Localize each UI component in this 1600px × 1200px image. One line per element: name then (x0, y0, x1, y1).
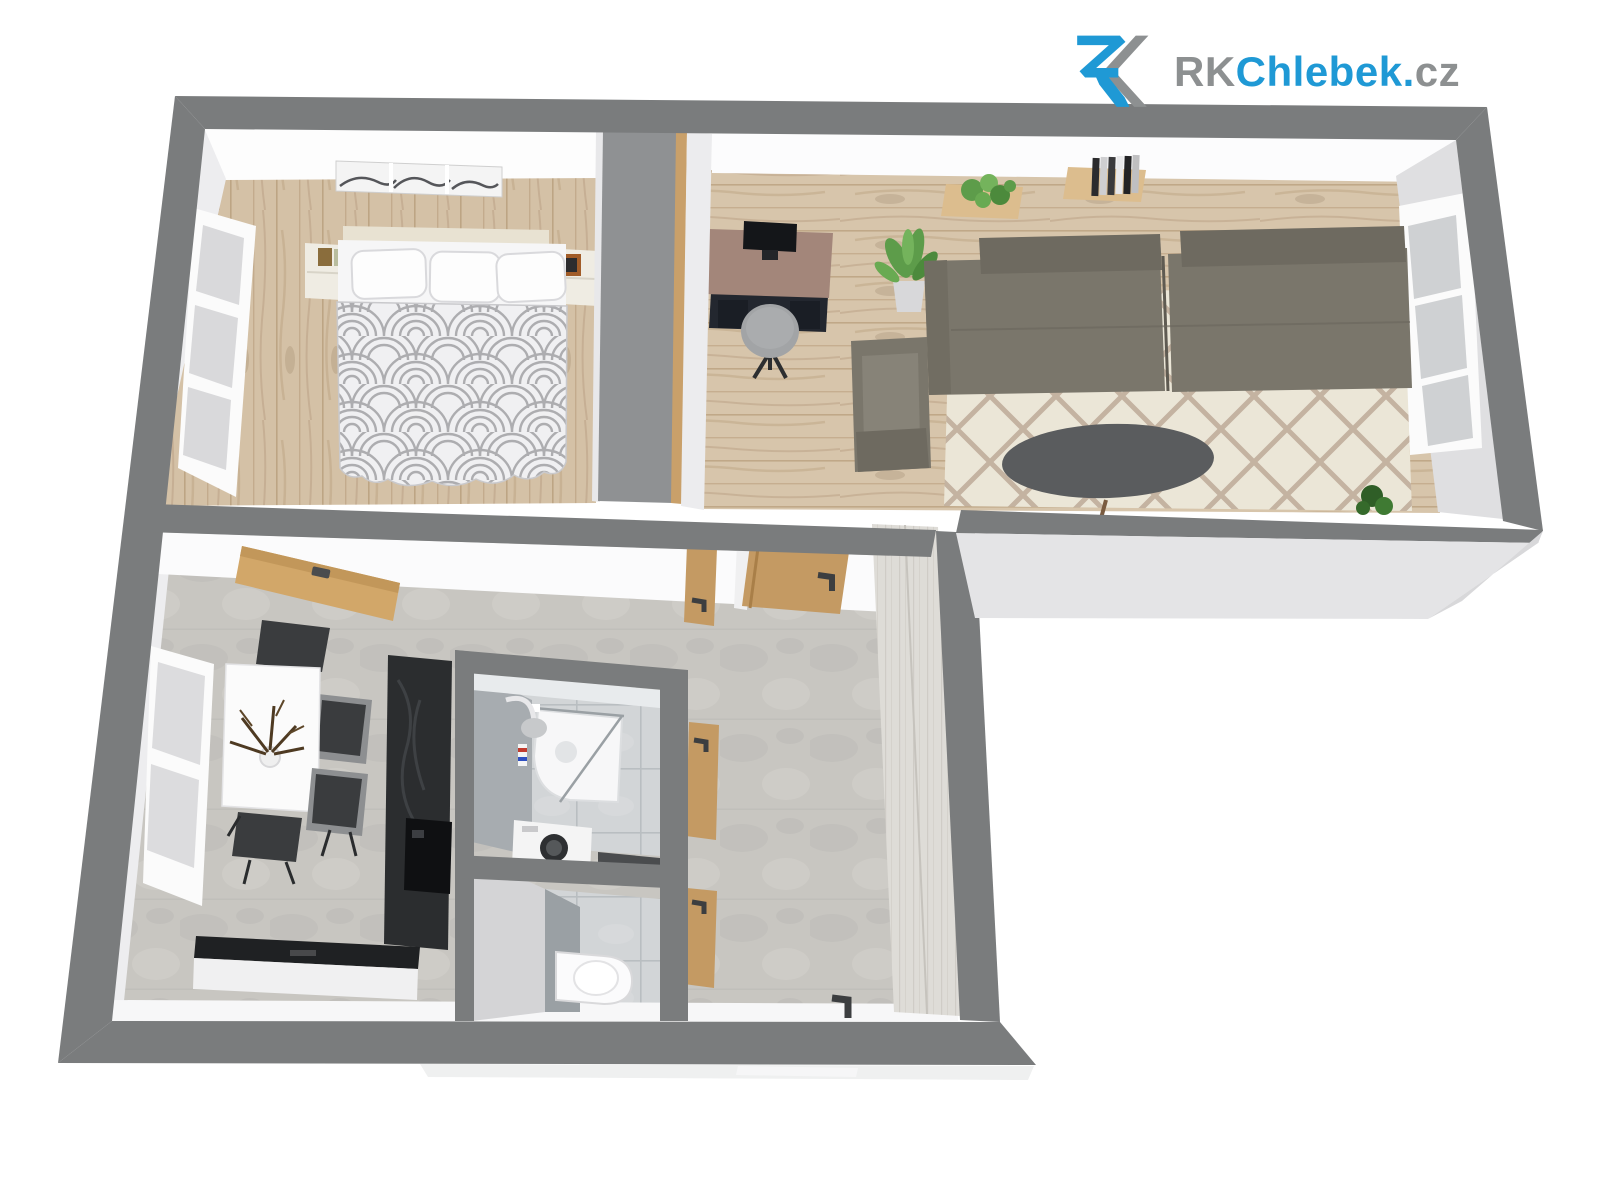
toilet (556, 952, 632, 1004)
toiletries-bottle (518, 744, 527, 766)
wc (556, 952, 632, 1004)
brand-wordmark: RKChlebek.cz (1174, 48, 1460, 96)
interior-wood-door-3 (684, 888, 717, 988)
interior-wood-door-2 (686, 722, 719, 840)
brand-segment-chlebek: Chlebek (1236, 48, 1403, 95)
monitor (743, 221, 797, 252)
patterned-duvet (337, 302, 567, 486)
brand-segment-rk: RK (1174, 48, 1236, 95)
double-bed (337, 226, 567, 486)
built-in-appliance (404, 818, 452, 894)
gray-wardrobe (592, 130, 687, 504)
floorplan-canvas (0, 0, 1600, 1200)
wall-bath-east (660, 670, 688, 1021)
white-dining-table (222, 664, 320, 812)
dark-counter-side (384, 655, 452, 950)
sofa-back-right (1180, 226, 1406, 267)
sofa-seat-right (1168, 248, 1412, 392)
armchair (851, 337, 931, 472)
bottom-exterior (420, 1064, 1034, 1080)
floorplan-page: RKChlebek.cz (0, 0, 1600, 1200)
wall-bath-west (455, 650, 474, 1021)
wall-art-triptych (336, 161, 502, 197)
corner-shower (530, 704, 624, 802)
sofa-back-left (979, 234, 1162, 274)
wardrobe-front (598, 130, 678, 503)
open-wood-door (734, 544, 849, 614)
dark-counter-bottom (193, 936, 420, 1000)
sofa-seat-left (924, 256, 1165, 395)
interior-wood-door-1 (684, 545, 717, 626)
kitchen-window (143, 646, 214, 906)
wall-bottom (58, 1021, 1036, 1065)
rk-monogram-icon (1064, 34, 1160, 110)
brand-segment-cz: cz (1415, 48, 1460, 95)
brand-segment-dot: . (1403, 48, 1415, 95)
brand-logo[interactable]: RKChlebek.cz (1064, 34, 1460, 110)
pillows (351, 249, 566, 303)
